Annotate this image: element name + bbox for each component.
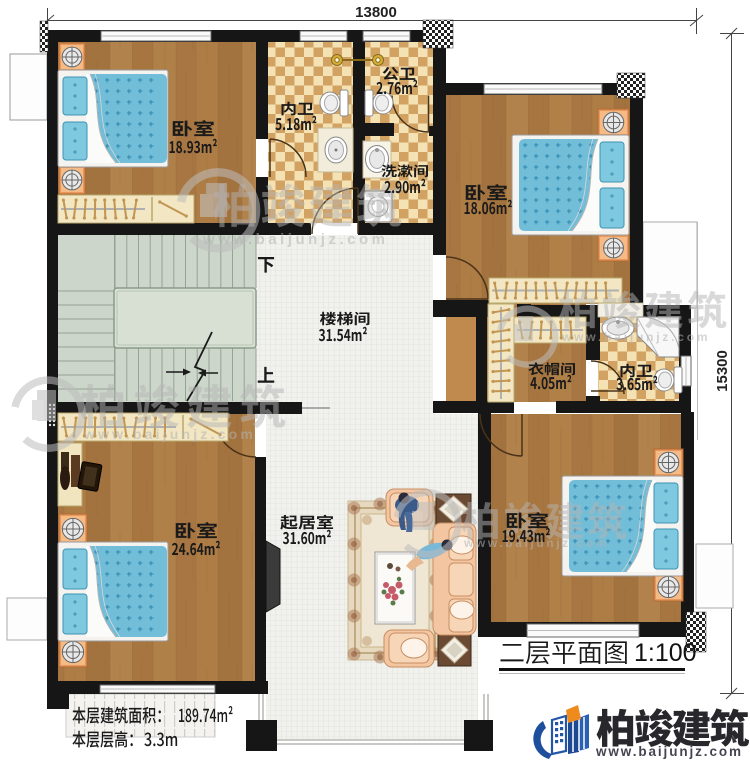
svg-text:1:100: 1:100 <box>634 639 697 667</box>
svg-text:www.baijunjz.com: www.baijunjz.com <box>595 744 743 759</box>
svg-text:www.baijunjz.com: www.baijunjz.com <box>83 426 256 442</box>
svg-text:15300: 15300 <box>714 350 731 392</box>
svg-text:13800: 13800 <box>355 4 397 21</box>
svg-text:www.baijunjz.com: www.baijunjz.com <box>202 231 388 248</box>
svg-text:www.baijunjz.com: www.baijunjz.com <box>561 330 710 344</box>
